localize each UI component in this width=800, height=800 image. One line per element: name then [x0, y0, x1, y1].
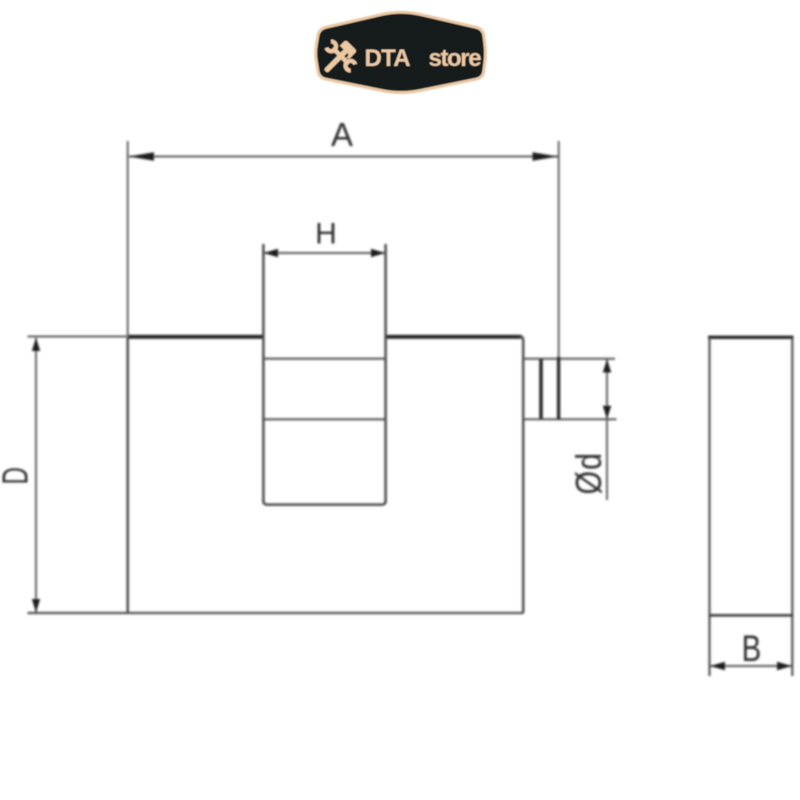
svg-text:B: B [742, 629, 762, 670]
svg-text:DTA: DTA [365, 45, 411, 72]
svg-text:D: D [0, 467, 36, 484]
svg-text:Ød: Ød [569, 452, 609, 494]
svg-text:store: store [429, 45, 482, 72]
svg-text:A: A [331, 116, 353, 153]
svg-text:H: H [315, 218, 337, 251]
